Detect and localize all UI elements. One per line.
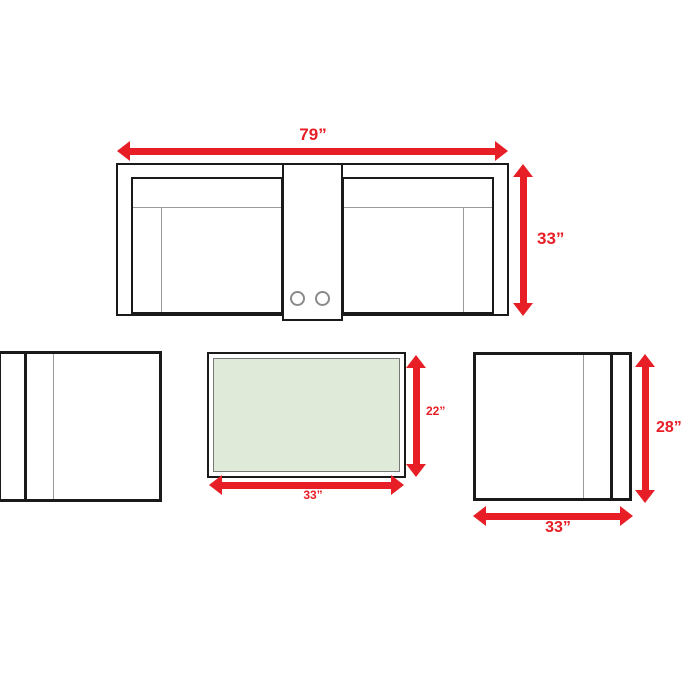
right-armchair-width-label: 33” bbox=[545, 520, 571, 536]
sofa-depth-arrow bbox=[513, 164, 533, 316]
sofa-seat-left-cushion-line bbox=[133, 207, 281, 208]
arrow-up-head bbox=[513, 164, 533, 177]
arrow-left-head bbox=[473, 506, 486, 526]
arrow-shaft bbox=[130, 148, 495, 155]
sofa-width-arrow bbox=[117, 141, 508, 161]
arrow-right-head bbox=[495, 141, 508, 161]
sofa-seat-right-cushion-line bbox=[344, 207, 492, 208]
coffee-table-width-label: 33” bbox=[303, 489, 322, 501]
right-armchair-height-label: 28” bbox=[656, 420, 682, 436]
arrow-left-head bbox=[209, 475, 222, 495]
arrow-left-head bbox=[117, 141, 130, 161]
arrow-shaft bbox=[642, 367, 649, 490]
sofa-seat-left-fold-line bbox=[161, 207, 162, 312]
left-armchair-cushion-line bbox=[53, 354, 54, 499]
sofa-seat-left bbox=[131, 177, 283, 314]
coffee-table-glass bbox=[213, 358, 400, 472]
sofa-seat-right bbox=[342, 177, 494, 314]
arrow-shaft bbox=[413, 368, 420, 464]
right-armchair-armrest-divider bbox=[610, 352, 613, 501]
cupholder-left bbox=[290, 291, 305, 306]
arrow-up-head bbox=[406, 355, 426, 368]
right-armchair-cushion-line bbox=[583, 355, 584, 498]
arrow-right-head bbox=[391, 475, 404, 495]
left-armchair-armrest-divider bbox=[24, 351, 27, 502]
coffee-table-depth-label: 22” bbox=[426, 405, 445, 417]
arrow-shaft bbox=[520, 177, 527, 303]
arrow-up-head bbox=[635, 354, 655, 367]
sofa-depth-label: 33” bbox=[537, 230, 564, 247]
right-armchair-height-arrow bbox=[635, 354, 655, 503]
cupholder-right bbox=[315, 291, 330, 306]
arrow-down-head bbox=[406, 464, 426, 477]
arrow-down-head bbox=[513, 303, 533, 316]
right-armchair-outline bbox=[473, 352, 632, 501]
arrow-right-head bbox=[620, 506, 633, 526]
coffee-table-depth-arrow bbox=[406, 355, 426, 477]
sofa-seat-right-fold-line bbox=[463, 207, 464, 312]
furniture-dimensions-diagram: 79” 33” 22” 33” bbox=[0, 0, 700, 700]
arrow-down-head bbox=[635, 490, 655, 503]
